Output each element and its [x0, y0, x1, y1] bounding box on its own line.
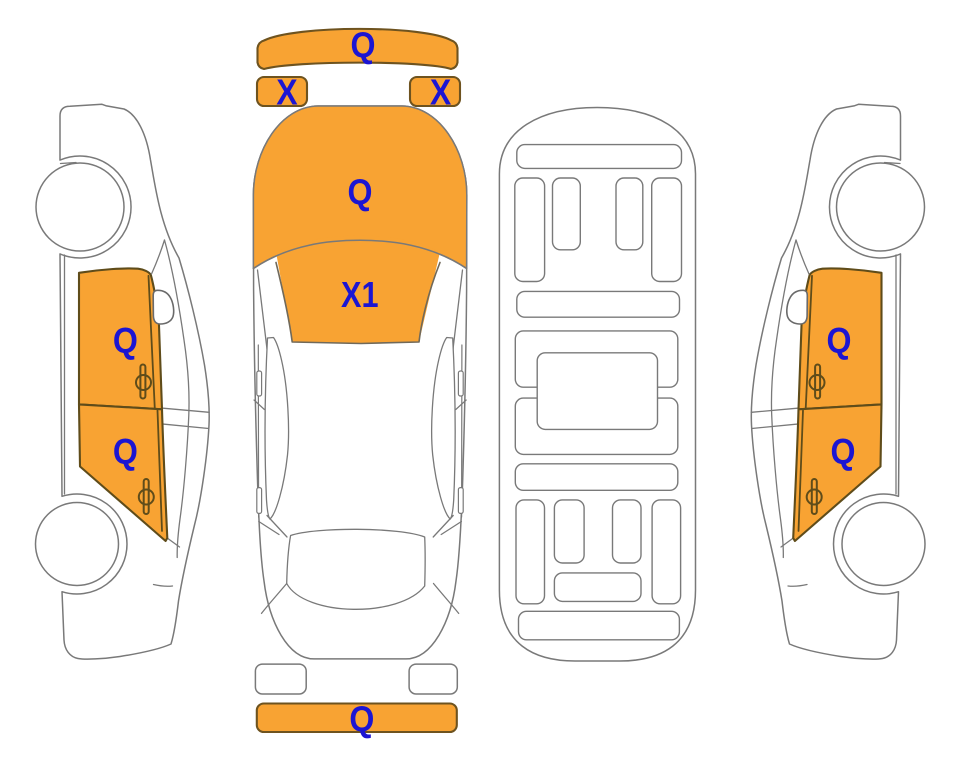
svg-text:X: X — [276, 73, 297, 113]
svg-text:Q: Q — [349, 699, 374, 739]
svg-text:Q: Q — [827, 321, 852, 361]
svg-text:X: X — [430, 73, 451, 113]
svg-text:Q: Q — [831, 432, 856, 472]
svg-text:X1: X1 — [341, 275, 378, 316]
svg-text:Q: Q — [351, 26, 376, 66]
svg-text:Q: Q — [113, 321, 138, 361]
svg-text:Q: Q — [348, 172, 373, 212]
svg-text:Q: Q — [113, 432, 138, 472]
